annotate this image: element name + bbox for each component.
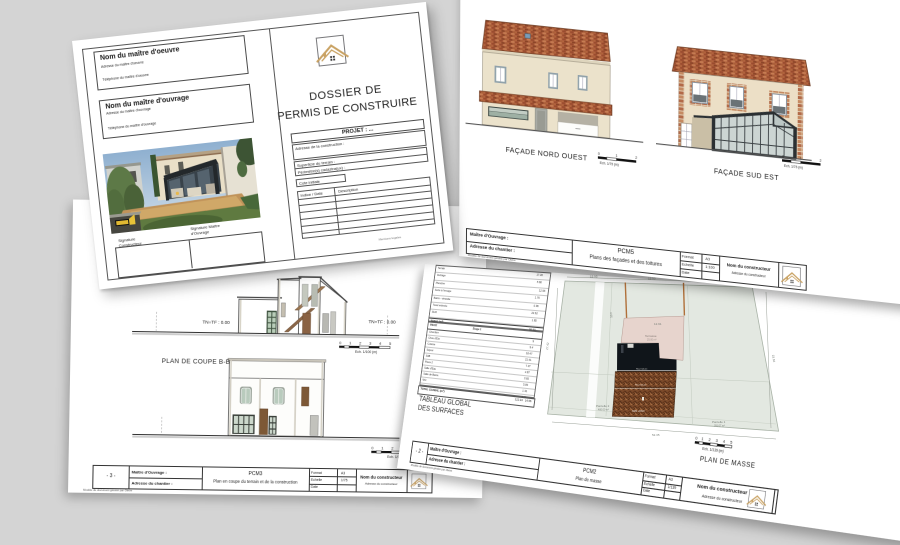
svg-text:12.91: 12.91 <box>654 322 662 326</box>
svg-text:400.00 m²: 400.00 m² <box>598 409 609 412</box>
svg-text:15.95: 15.95 <box>590 275 598 279</box>
svg-text:0: 0 <box>782 155 784 159</box>
svg-text:0: 0 <box>598 152 600 156</box>
svg-text:Ech. 1/75 (m): Ech. 1/75 (m) <box>600 161 619 167</box>
svg-text:Terrasse: Terrasse <box>645 334 657 338</box>
svg-text:52.35: 52.35 <box>652 433 660 437</box>
svg-text:4.95: 4.95 <box>609 312 613 318</box>
svg-text:1: 1 <box>616 154 618 158</box>
svg-text:Haut toiture: Haut toiture <box>636 367 648 370</box>
svg-text:391.07 m²: 391.07 m² <box>714 425 725 428</box>
svg-text:1: 1 <box>800 157 802 161</box>
svg-text:Ech. 1/75 (m): Ech. 1/75 (m) <box>784 164 803 170</box>
svg-text:Parcelle 1: Parcelle 1 <box>712 420 726 424</box>
svg-text:2: 2 <box>820 159 822 163</box>
svg-text:Haut toiture: Haut toiture <box>635 384 647 387</box>
svg-text:27.42: 27.42 <box>545 342 550 350</box>
svg-text:Parcelle 2: Parcelle 2 <box>596 404 610 408</box>
svg-text:23.84: 23.84 <box>771 354 776 362</box>
svg-text:NMF +DNO: NMF +DNO <box>632 410 645 413</box>
svg-text:2: 2 <box>635 156 637 160</box>
svg-text:25.00 m²: 25.00 m² <box>647 339 657 342</box>
